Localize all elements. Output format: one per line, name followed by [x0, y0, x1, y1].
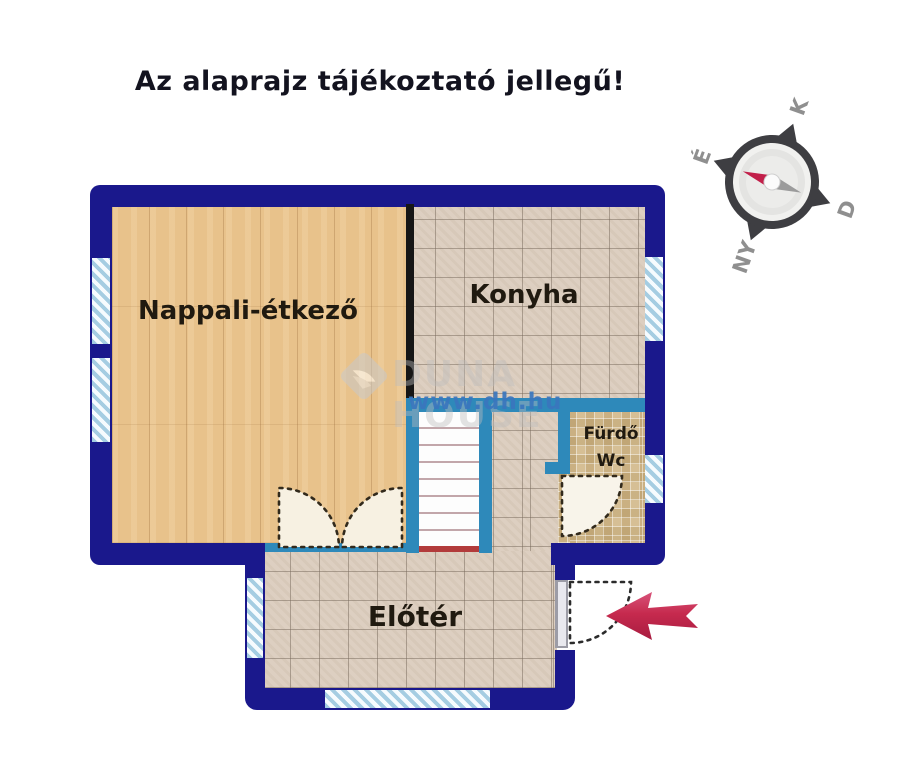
- disclaimer-title: Az alaprajz tájékoztató jellegű!: [60, 66, 700, 97]
- window-hall-bottom: [325, 690, 490, 708]
- bathroom-label-line2: Wc: [573, 448, 649, 475]
- window-living-2: [92, 358, 110, 442]
- window-hall-left: [247, 578, 263, 658]
- hall-label: Előtér: [305, 600, 525, 633]
- compass-north-label: É: [688, 145, 716, 167]
- compass-west-label: NY: [728, 237, 762, 275]
- hall-right-wall-lower: [555, 650, 575, 688]
- bathroom-label-line1: Fürdő: [573, 421, 649, 448]
- compass-rose-icon: É K D NY: [688, 90, 863, 275]
- hall-right-wall-upper: [555, 565, 575, 580]
- bathroom-wall-notch: [545, 462, 570, 474]
- living-room-label: Nappali-étkező: [108, 296, 388, 326]
- bathroom-bottom-wall: [551, 543, 565, 565]
- compass-south-label: D: [833, 197, 862, 222]
- stair-edge-line: [419, 546, 479, 552]
- watermark-url: www.dh.hu: [408, 389, 598, 415]
- compass-east-label: K: [785, 94, 813, 118]
- entrance-door-swing: [570, 582, 631, 643]
- bathroom-label: Fürdő Wc: [573, 421, 649, 475]
- bathroom-floor-patch: [558, 474, 570, 543]
- kitchen-label: Konyha: [414, 280, 634, 310]
- watermark-logo-icon: [338, 350, 390, 402]
- entrance-arrow-icon: [606, 592, 698, 640]
- window-kitchen: [645, 257, 663, 341]
- double-door-threshold: [265, 543, 408, 552]
- entrance-door-leaf-inner: [558, 582, 566, 646]
